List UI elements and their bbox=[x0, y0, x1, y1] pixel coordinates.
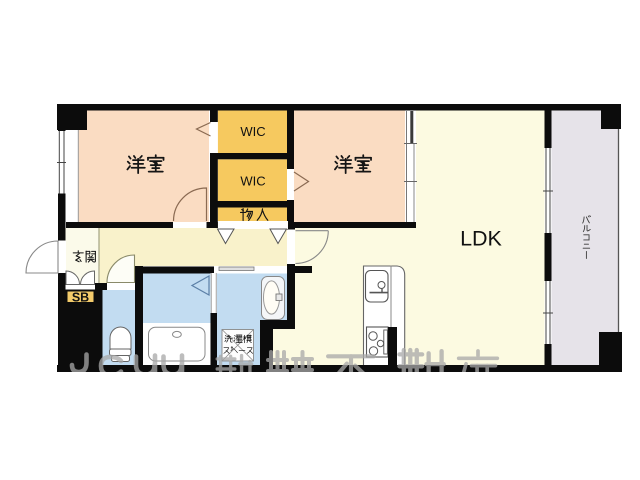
svg-text:WIC: WIC bbox=[240, 174, 265, 189]
svg-text:LDK: LDK bbox=[460, 227, 502, 251]
svg-text:WIC: WIC bbox=[240, 124, 265, 139]
svg-text:SB: SB bbox=[72, 291, 89, 305]
